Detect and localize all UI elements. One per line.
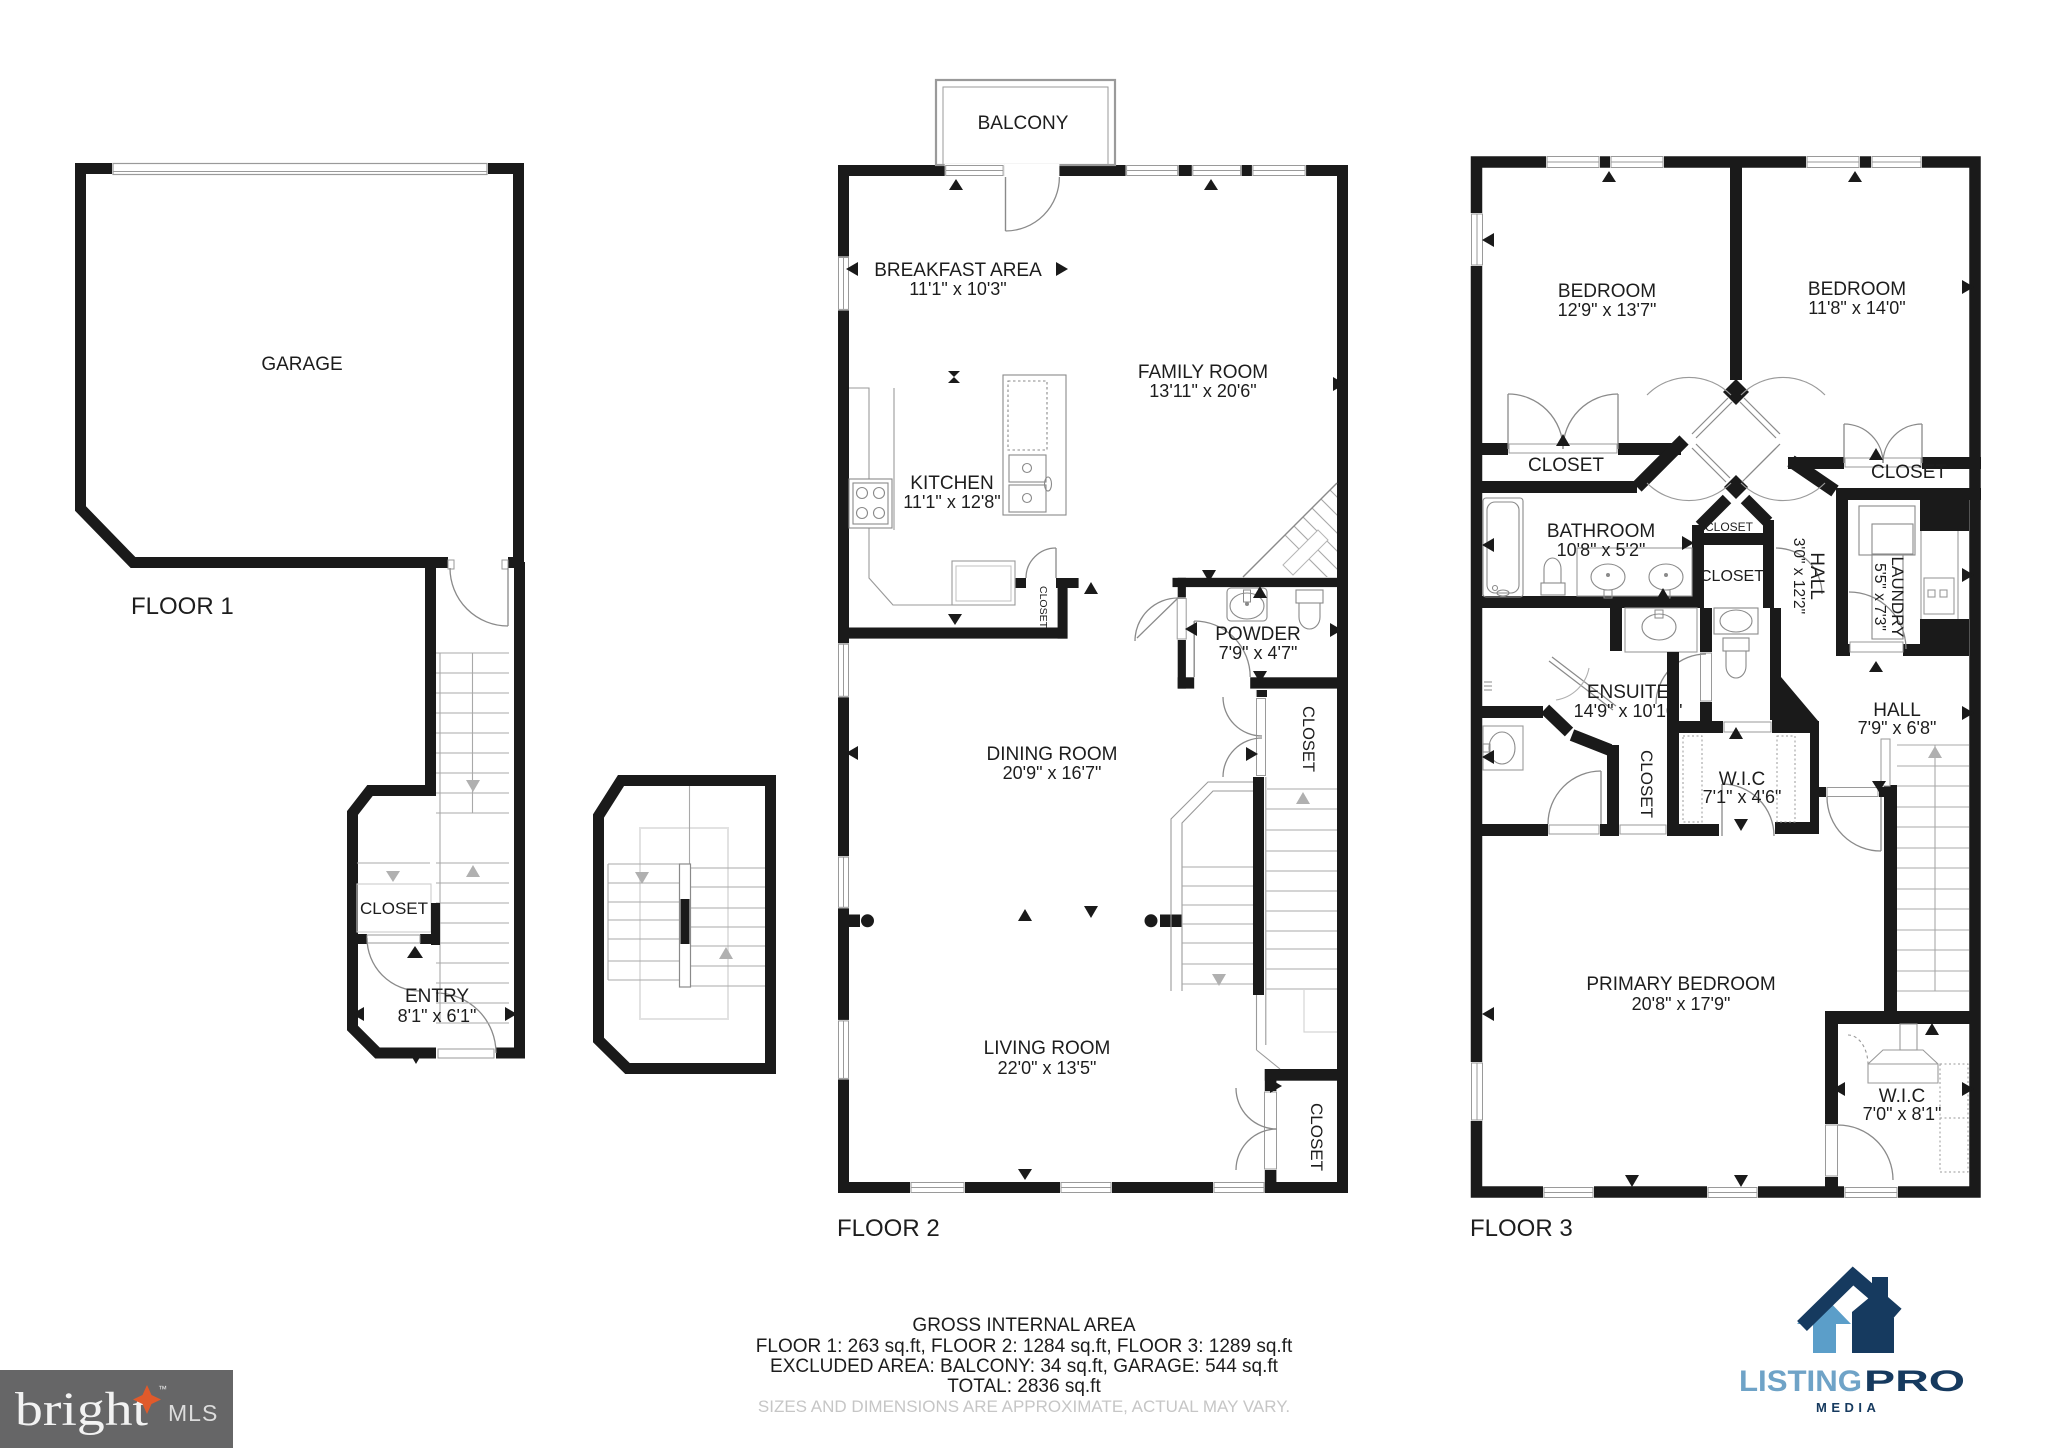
svg-text:CLOSET: CLOSET <box>1299 706 1317 772</box>
svg-text:CLOSET: CLOSET <box>1637 750 1656 818</box>
svg-text:FLOOR 1: FLOOR 1 <box>131 593 234 620</box>
svg-text:20'8" x 17'9": 20'8" x 17'9" <box>1632 994 1731 1014</box>
svg-text:CLOSET: CLOSET <box>1700 568 1764 585</box>
svg-text:CLOSET: CLOSET <box>1871 462 1947 483</box>
svg-text:FLOOR 3: FLOOR 3 <box>1470 1215 1573 1242</box>
svg-text:PRO: PRO <box>1864 1365 1965 1398</box>
svg-text:BATHROOM: BATHROOM <box>1547 521 1655 542</box>
svg-text:ENTRY: ENTRY <box>405 986 469 1007</box>
svg-text:BEDROOM: BEDROOM <box>1808 279 1906 300</box>
svg-text:TOTAL: 2836 sq.ft: TOTAL: 2836 sq.ft <box>947 1376 1101 1397</box>
svg-text:CLOSET: CLOSET <box>1528 455 1604 476</box>
svg-text:DINING ROOM: DINING ROOM <box>987 744 1118 765</box>
svg-text:LAUNDRY: LAUNDRY <box>1888 557 1907 638</box>
svg-text:ENSUITE: ENSUITE <box>1587 682 1669 703</box>
svg-text:PRIMARY BEDROOM: PRIMARY BEDROOM <box>1586 974 1775 995</box>
svg-text:LIVING ROOM: LIVING ROOM <box>984 1038 1111 1059</box>
svg-text:GARAGE: GARAGE <box>261 354 342 375</box>
svg-text:CLOSET: CLOSET <box>1705 520 1754 534</box>
svg-text:BALCONY: BALCONY <box>978 113 1069 134</box>
svg-text:MLS: MLS <box>168 1400 218 1426</box>
svg-text:FAMILY ROOM: FAMILY ROOM <box>1138 362 1268 383</box>
svg-text:EXCLUDED AREA: BALCONY: 34 sq.: EXCLUDED AREA: BALCONY: 34 sq.ft, GARAGE… <box>770 1356 1279 1377</box>
svg-text:7'0" x 8'1": 7'0" x 8'1" <box>1863 1104 1942 1124</box>
svg-text:14'9" x 10'10": 14'9" x 10'10" <box>1574 701 1683 721</box>
svg-text:11'8" x 14'0": 11'8" x 14'0" <box>1808 298 1905 318</box>
svg-text:POWDER: POWDER <box>1215 624 1301 645</box>
svg-text:KITCHEN: KITCHEN <box>910 473 993 494</box>
svg-text:22'0" x 13'5": 22'0" x 13'5" <box>998 1058 1097 1078</box>
svg-text:CLOSET: CLOSET <box>360 899 428 918</box>
svg-text:LISTING: LISTING <box>1739 1365 1862 1398</box>
svg-text:™: ™ <box>158 1384 167 1394</box>
svg-text:FLOOR 1: 263 sq.ft, FLOOR 2: 1: FLOOR 1: 263 sq.ft, FLOOR 2: 1284 sq.ft,… <box>756 1336 1293 1357</box>
svg-text:BREAKFAST AREA: BREAKFAST AREA <box>874 260 1042 281</box>
svg-text:MEDIA: MEDIA <box>1816 1400 1880 1415</box>
svg-text:11'1" x 10'3": 11'1" x 10'3" <box>909 279 1006 299</box>
svg-text:SIZES AND DIMENSIONS ARE APPRO: SIZES AND DIMENSIONS ARE APPROXIMATE, AC… <box>758 1397 1290 1416</box>
svg-text:8'1" x 6'1": 8'1" x 6'1" <box>398 1006 477 1026</box>
svg-text:BEDROOM: BEDROOM <box>1558 281 1656 302</box>
svg-text:bright: bright <box>15 1383 149 1436</box>
svg-text:7'9" x 4'7": 7'9" x 4'7" <box>1219 643 1298 663</box>
svg-text:7'9" x 6'8": 7'9" x 6'8" <box>1858 718 1937 738</box>
svg-text:CLOSET: CLOSET <box>1307 1103 1326 1171</box>
svg-text:GROSS INTERNAL AREA: GROSS INTERNAL AREA <box>912 1315 1135 1336</box>
svg-text:HALL: HALL <box>1806 552 1827 600</box>
svg-text:12'9" x 13'7": 12'9" x 13'7" <box>1558 300 1657 320</box>
svg-text:FLOOR 2: FLOOR 2 <box>837 1215 940 1242</box>
svg-text:3'0" x 12'2": 3'0" x 12'2" <box>1790 538 1807 614</box>
svg-text:7'1" x 4'6": 7'1" x 4'6" <box>1703 787 1782 807</box>
svg-text:20'9" x 16'7": 20'9" x 16'7" <box>1003 763 1102 783</box>
svg-text:5'5" x 7'3": 5'5" x 7'3" <box>1871 563 1888 631</box>
svg-text:13'11" x 20'6": 13'11" x 20'6" <box>1149 381 1256 401</box>
svg-text:10'8" x 5'2": 10'8" x 5'2" <box>1557 540 1646 560</box>
svg-text:11'1" x 12'8": 11'1" x 12'8" <box>903 492 1000 512</box>
svg-text:CLOSET: CLOSET <box>1037 586 1049 629</box>
